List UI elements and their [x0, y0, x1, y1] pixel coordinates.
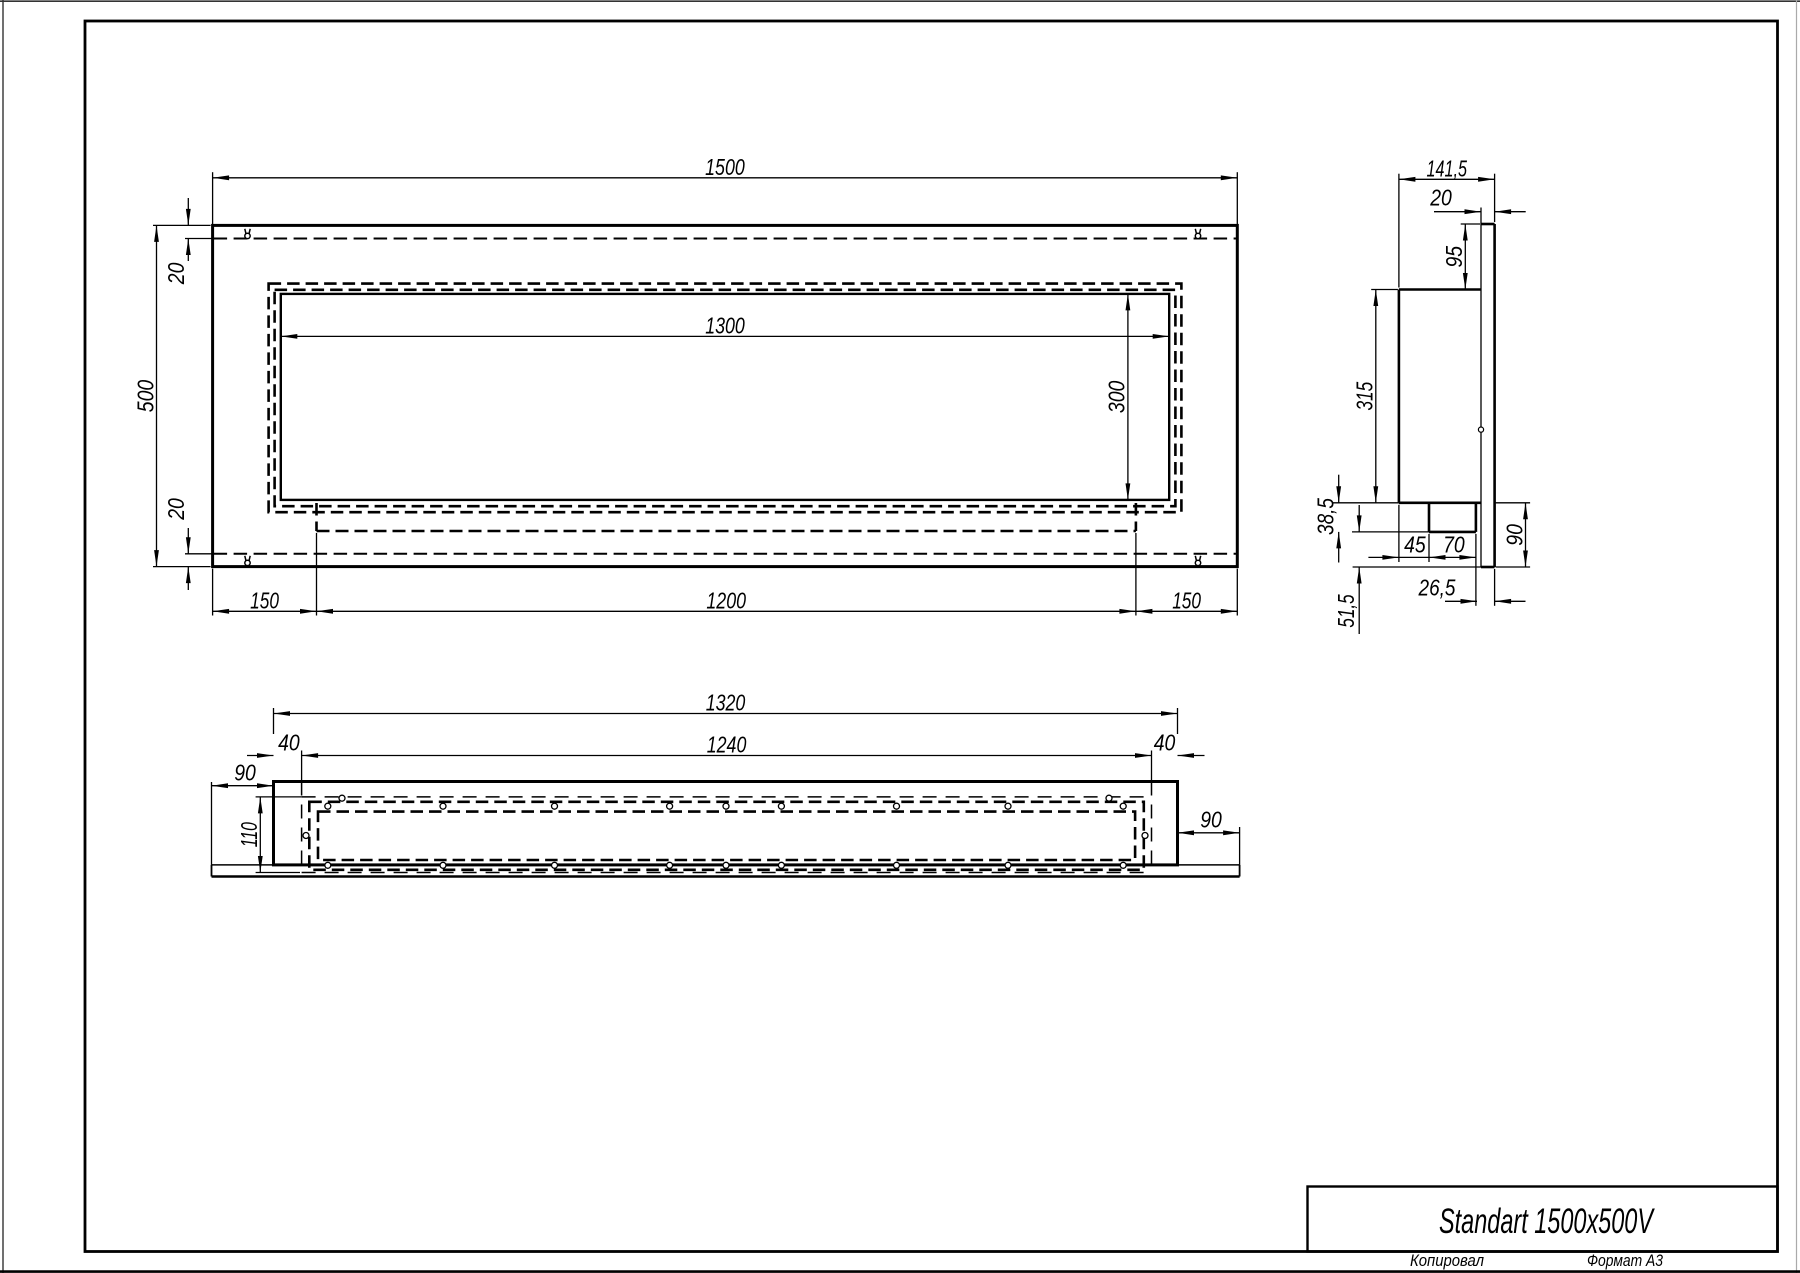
- svg-text:38,5: 38,5: [1313, 498, 1339, 535]
- svg-text:150: 150: [1172, 587, 1201, 613]
- svg-text:40: 40: [1154, 730, 1176, 756]
- svg-text:150: 150: [250, 587, 279, 613]
- svg-text:45: 45: [1404, 531, 1426, 557]
- svg-text:20: 20: [163, 498, 189, 521]
- svg-text:26,5: 26,5: [1418, 574, 1456, 600]
- svg-text:1200: 1200: [706, 587, 746, 613]
- svg-text:500: 500: [132, 380, 158, 413]
- svg-text:90: 90: [1200, 806, 1222, 832]
- svg-text:Копировал: Копировал: [1410, 1252, 1484, 1270]
- svg-text:300: 300: [1104, 381, 1130, 414]
- svg-text:95: 95: [1441, 246, 1467, 268]
- svg-text:1320: 1320: [706, 690, 746, 716]
- svg-text:Standart 1500x500V: Standart 1500x500V: [1439, 1202, 1655, 1241]
- svg-text:90: 90: [1501, 524, 1527, 546]
- svg-text:1240: 1240: [707, 732, 747, 758]
- svg-text:315: 315: [1352, 382, 1378, 411]
- svg-text:70: 70: [1443, 531, 1465, 557]
- svg-text:1300: 1300: [705, 312, 745, 338]
- svg-text:40: 40: [278, 730, 300, 756]
- svg-text:141,5: 141,5: [1427, 155, 1468, 181]
- svg-text:20: 20: [1429, 185, 1452, 211]
- svg-text:Формат А3: Формат А3: [1587, 1252, 1664, 1270]
- svg-text:20: 20: [163, 262, 189, 285]
- svg-text:1500: 1500: [705, 154, 745, 180]
- svg-text:90: 90: [234, 760, 256, 786]
- svg-text:51,5: 51,5: [1333, 594, 1359, 627]
- svg-text:110: 110: [236, 822, 262, 847]
